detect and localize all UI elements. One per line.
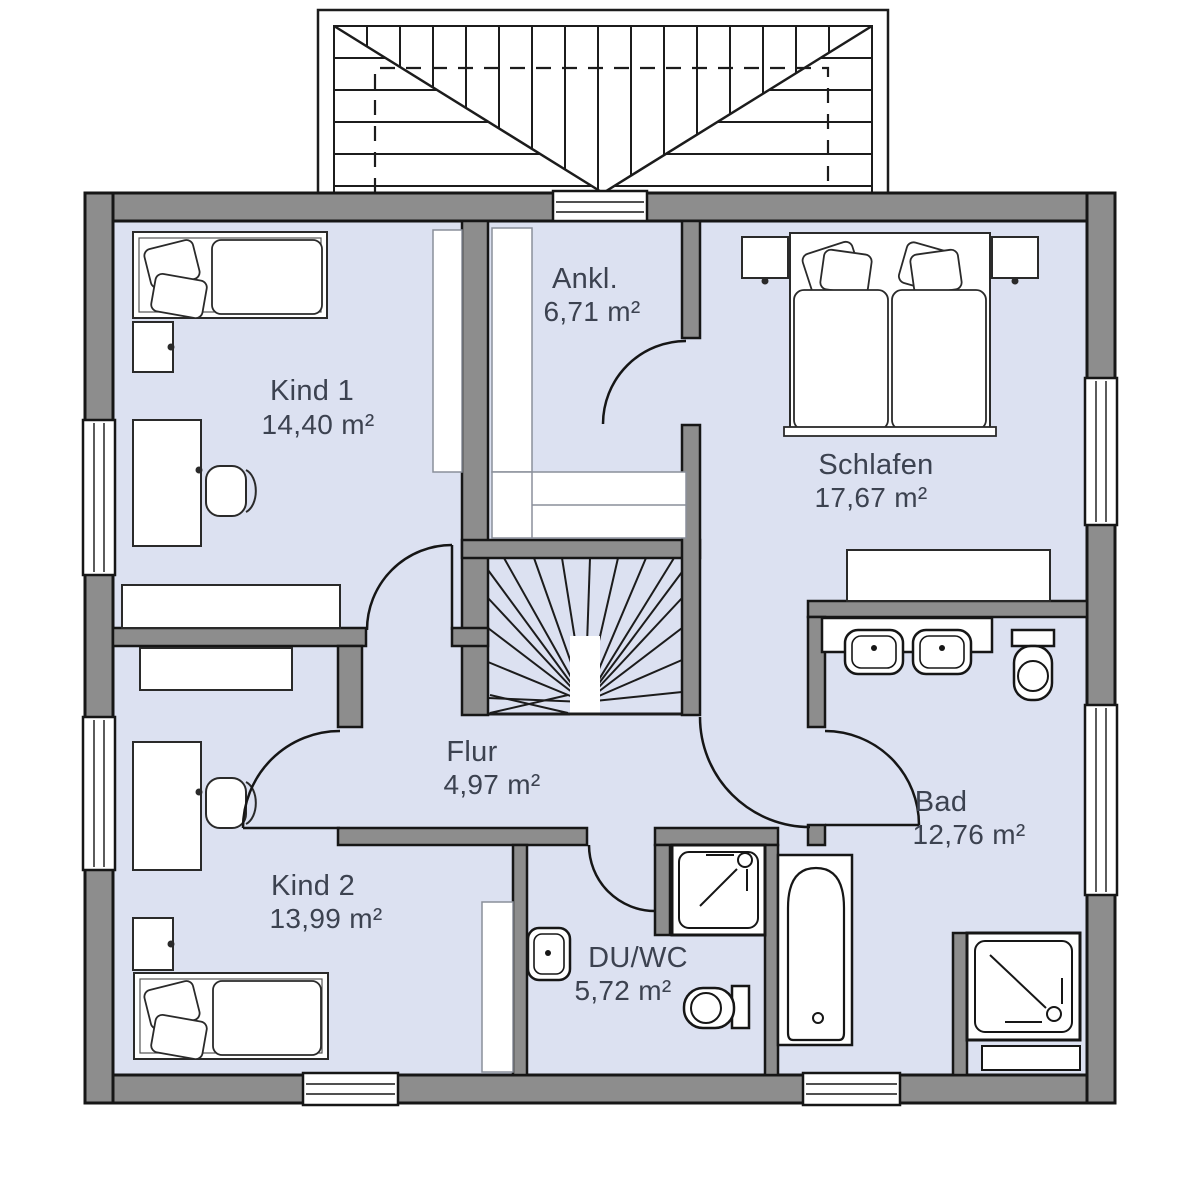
room-area: 17,67 m² [815,482,928,513]
single-bed-icon [134,973,328,1060]
room-name: Ankl. [552,263,618,295]
room-area: 6,71 m² [543,296,640,327]
sink-icon [913,630,971,674]
desk-icon [133,742,202,870]
sink-icon [845,630,903,674]
window [803,1073,900,1105]
nightstand-icon [742,237,788,284]
roof-plan [318,10,888,193]
window [1085,705,1117,895]
wardrobe-icon [482,902,513,1072]
wardrobe-icon [433,230,462,472]
room-area: 14,40 m² [262,409,375,440]
radiator-icon [982,1046,1080,1070]
shower-icon [672,845,765,935]
room-name: Kind 2 [271,870,355,902]
toilet-icon [684,986,749,1028]
window [553,191,647,221]
room-name: Flur [446,736,497,768]
window [303,1073,398,1105]
nightstand-icon [133,918,174,970]
window [83,717,115,870]
desk-icon [133,420,202,546]
bathtub-icon [778,855,852,1045]
shelf-icon [122,585,340,628]
toilet-icon [1012,630,1054,700]
window [1085,378,1117,525]
room-name: DU/WC [588,942,688,974]
dresser-icon [847,550,1050,601]
room-name: Schlafen [818,449,933,481]
shower-icon [967,933,1080,1040]
shelf-icon [140,648,292,690]
wardrobe-icon [492,228,532,472]
room-area: 5,72 m² [574,975,671,1006]
room-area: 12,76 m² [913,819,1026,850]
room-area: 4,97 m² [443,769,540,800]
floor-plan: Kind 1 14,40 m² Ankl. 6,71 m² Schlafen 1… [0,0,1200,1200]
room-name: Kind 1 [270,375,354,407]
floor-plan-canvas: Kind 1 14,40 m² Ankl. 6,71 m² Schlafen 1… [0,0,1200,1200]
nightstand-icon [992,237,1038,284]
single-bed-icon [133,232,327,319]
room-area: 13,99 m² [270,903,383,934]
sink-icon [528,928,570,980]
window [83,420,115,575]
double-bed-icon [784,233,996,436]
room-name: Bad [915,786,968,818]
nightstand-icon [133,322,174,372]
